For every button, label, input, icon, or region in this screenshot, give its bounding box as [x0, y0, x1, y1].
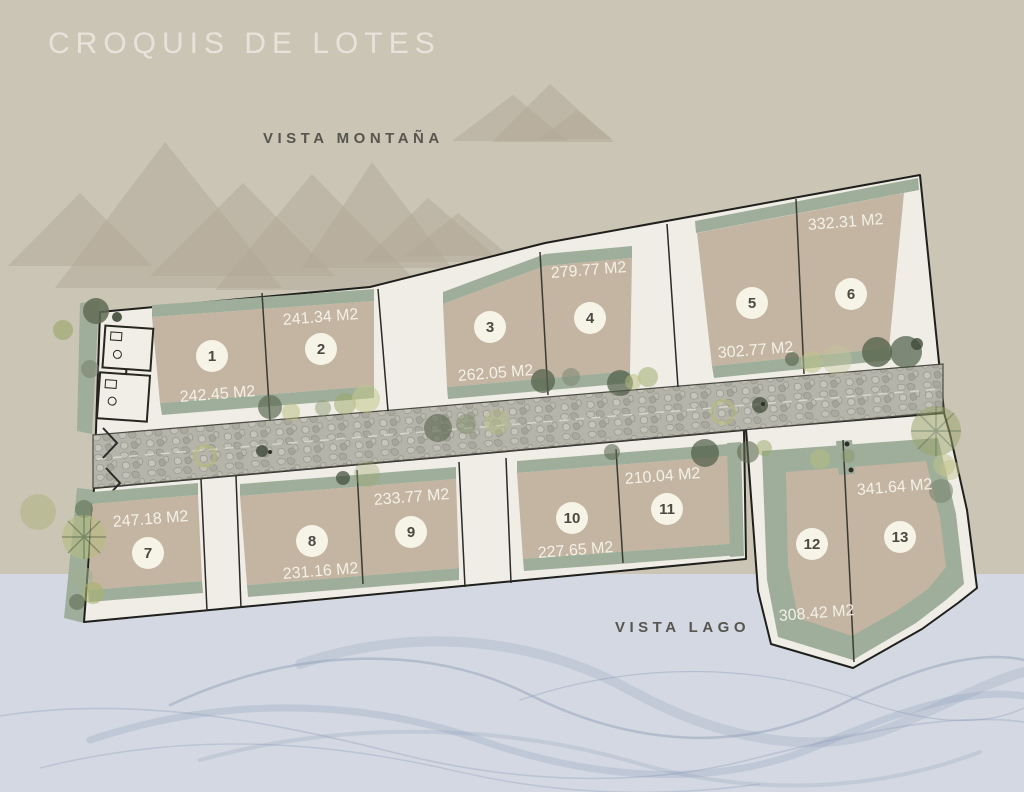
tree-icon [604, 444, 620, 460]
site-plan-canvas: CROQUIS DE LOTES VISTA MONTAÑA VISTA LAG… [0, 0, 1024, 792]
tree-icon [20, 494, 56, 530]
plant-mark-icon [761, 402, 765, 406]
tree-icon [801, 351, 823, 373]
mountain-view-label: VISTA MONTAÑA [263, 129, 444, 147]
tree-icon [53, 320, 73, 340]
tree-icon [484, 409, 510, 435]
tree-icon [841, 449, 855, 463]
lot-11-badge: 11 [651, 493, 683, 525]
lot-4-number: 4 [586, 310, 595, 327]
lot-10-badge: 10 [556, 502, 588, 534]
lot-10-number: 10 [564, 510, 581, 527]
lot-6-number: 6 [847, 286, 855, 303]
plant-mark-icon [268, 450, 272, 454]
gatehouse-room [97, 372, 150, 421]
tree-icon [756, 440, 772, 456]
tree-icon [82, 582, 104, 604]
tree-icon [911, 338, 923, 350]
plant-mark-icon [849, 468, 854, 473]
lot-13-number: 13 [892, 529, 909, 546]
lot-1-number: 1 [208, 348, 216, 365]
lot-12-number: 12 [804, 536, 821, 553]
tree-icon [456, 414, 476, 434]
lot-7-badge: 7 [132, 537, 164, 569]
tree-icon [691, 439, 719, 467]
tree-icon [638, 367, 658, 387]
lot-13-badge: 13 [884, 521, 916, 553]
lot-5-number: 5 [748, 295, 756, 312]
tree-icon [315, 400, 331, 416]
palm-tree-icon [911, 406, 961, 456]
tree-icon [940, 460, 960, 480]
lot-8-number: 8 [308, 533, 316, 550]
lot-6-badge: 6 [835, 278, 867, 310]
tree-icon [83, 298, 109, 324]
tree-icon [282, 403, 300, 421]
lot-5-badge: 5 [736, 287, 768, 319]
tree-icon [625, 374, 641, 390]
lot-7-number: 7 [144, 545, 152, 562]
lot-9-badge: 9 [395, 516, 427, 548]
tree-icon [354, 461, 380, 487]
tree-icon [336, 471, 350, 485]
lot-11-number: 11 [659, 501, 675, 518]
lot-4-badge: 4 [574, 302, 606, 334]
lake-view-label: VISTA LAGO [615, 619, 750, 636]
lot-3-badge: 3 [474, 311, 506, 343]
tree-icon [352, 385, 380, 413]
gatehouse-room [102, 326, 153, 371]
lot-3-number: 3 [486, 319, 494, 336]
tree-icon [822, 345, 852, 375]
tree-icon [258, 395, 282, 419]
lot-1-badge: 1 [196, 340, 228, 372]
palm-tree-icon [62, 515, 106, 559]
tree-icon [562, 368, 580, 386]
tree-icon [737, 441, 759, 463]
lot-2-badge: 2 [305, 333, 337, 365]
page-title: CROQUIS DE LOTES [48, 27, 441, 60]
lot-2-number: 2 [317, 341, 325, 358]
lot-12-badge: 12 [796, 528, 828, 560]
tree-icon [862, 337, 892, 367]
tree-icon [810, 449, 830, 469]
tree-icon [752, 397, 768, 413]
tree-icon [531, 369, 555, 393]
plant-mark-icon [845, 442, 850, 447]
tree-icon [112, 312, 122, 322]
tree-icon [81, 360, 99, 378]
tree-icon [256, 445, 268, 457]
tree-icon [424, 414, 452, 442]
lot-9-number: 9 [407, 524, 415, 541]
tree-icon [69, 594, 85, 610]
lot-8-badge: 8 [296, 525, 328, 557]
croquis-poster: CROQUIS DE LOTES VISTA MONTAÑA VISTA LAG… [0, 0, 1024, 792]
